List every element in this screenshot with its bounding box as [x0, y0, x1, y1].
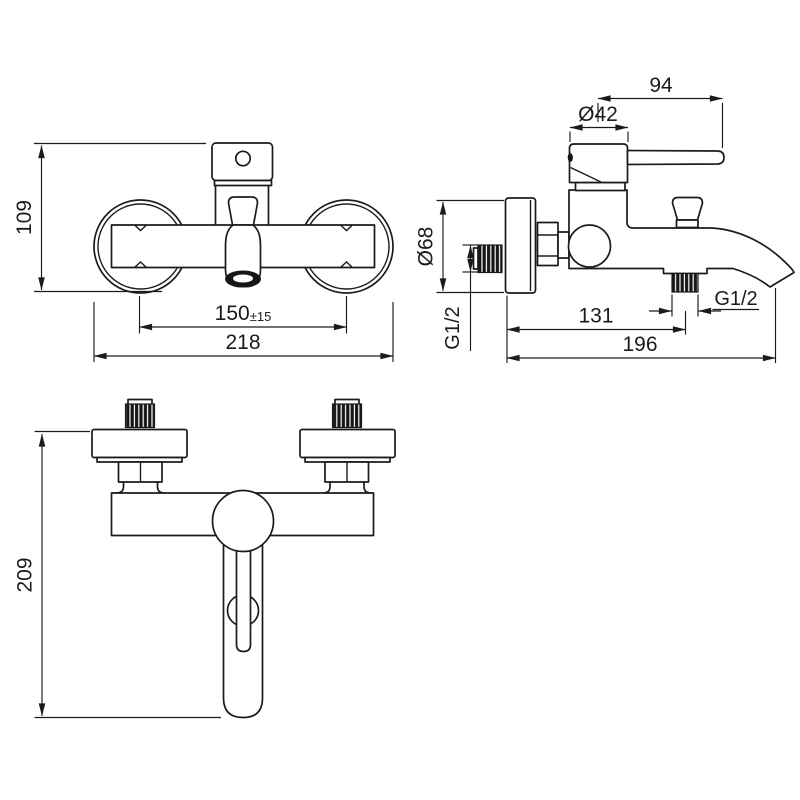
- side-inlet-thread: [478, 245, 502, 273]
- side-dim-handle-dia-label: Ø42: [578, 103, 618, 126]
- technical-drawing-page: 109 150±15 218: [0, 0, 800, 800]
- drawing-background: [0, 0, 800, 800]
- side-outlet-thread: [672, 274, 698, 293]
- side-inlet-cap: [474, 248, 479, 269]
- side-handle-neck: [576, 183, 626, 191]
- bottom-cartridge-circle: [213, 491, 274, 552]
- side-collar: [558, 232, 569, 258]
- side-mounting-nut: [538, 223, 559, 266]
- front-dim-width-label: 218: [225, 331, 260, 354]
- front-top-plate: [212, 143, 273, 181]
- side-cartridge-ball: [569, 225, 611, 267]
- side-dim-depth-label: 196: [622, 333, 657, 356]
- front-plate-band: [215, 181, 272, 186]
- side-dim-inlet-thread-label: G1/2: [442, 306, 464, 349]
- side-diverter-knob: [673, 198, 703, 228]
- front-aerator-center: [233, 275, 253, 283]
- bottom-dim-height-label: 209: [14, 557, 37, 592]
- side-dim-plate-dia-label: Ø68: [415, 227, 438, 267]
- side-dim-outlet-offset-label: 131: [578, 305, 613, 328]
- bottom-lever: [237, 540, 251, 652]
- front-diverter-knob: [229, 197, 258, 225]
- side-dim-lever-label: 94: [649, 74, 673, 97]
- mixer-drawing-svg: 109 150±15 218: [0, 0, 800, 800]
- side-handle-indicator-dot: [568, 153, 573, 162]
- side-handle-body: [570, 144, 628, 183]
- side-handle-lever: [628, 151, 725, 165]
- front-dim-height-label: 109: [13, 200, 36, 235]
- side-dim-outlet-thread-label: G1/2: [714, 288, 757, 310]
